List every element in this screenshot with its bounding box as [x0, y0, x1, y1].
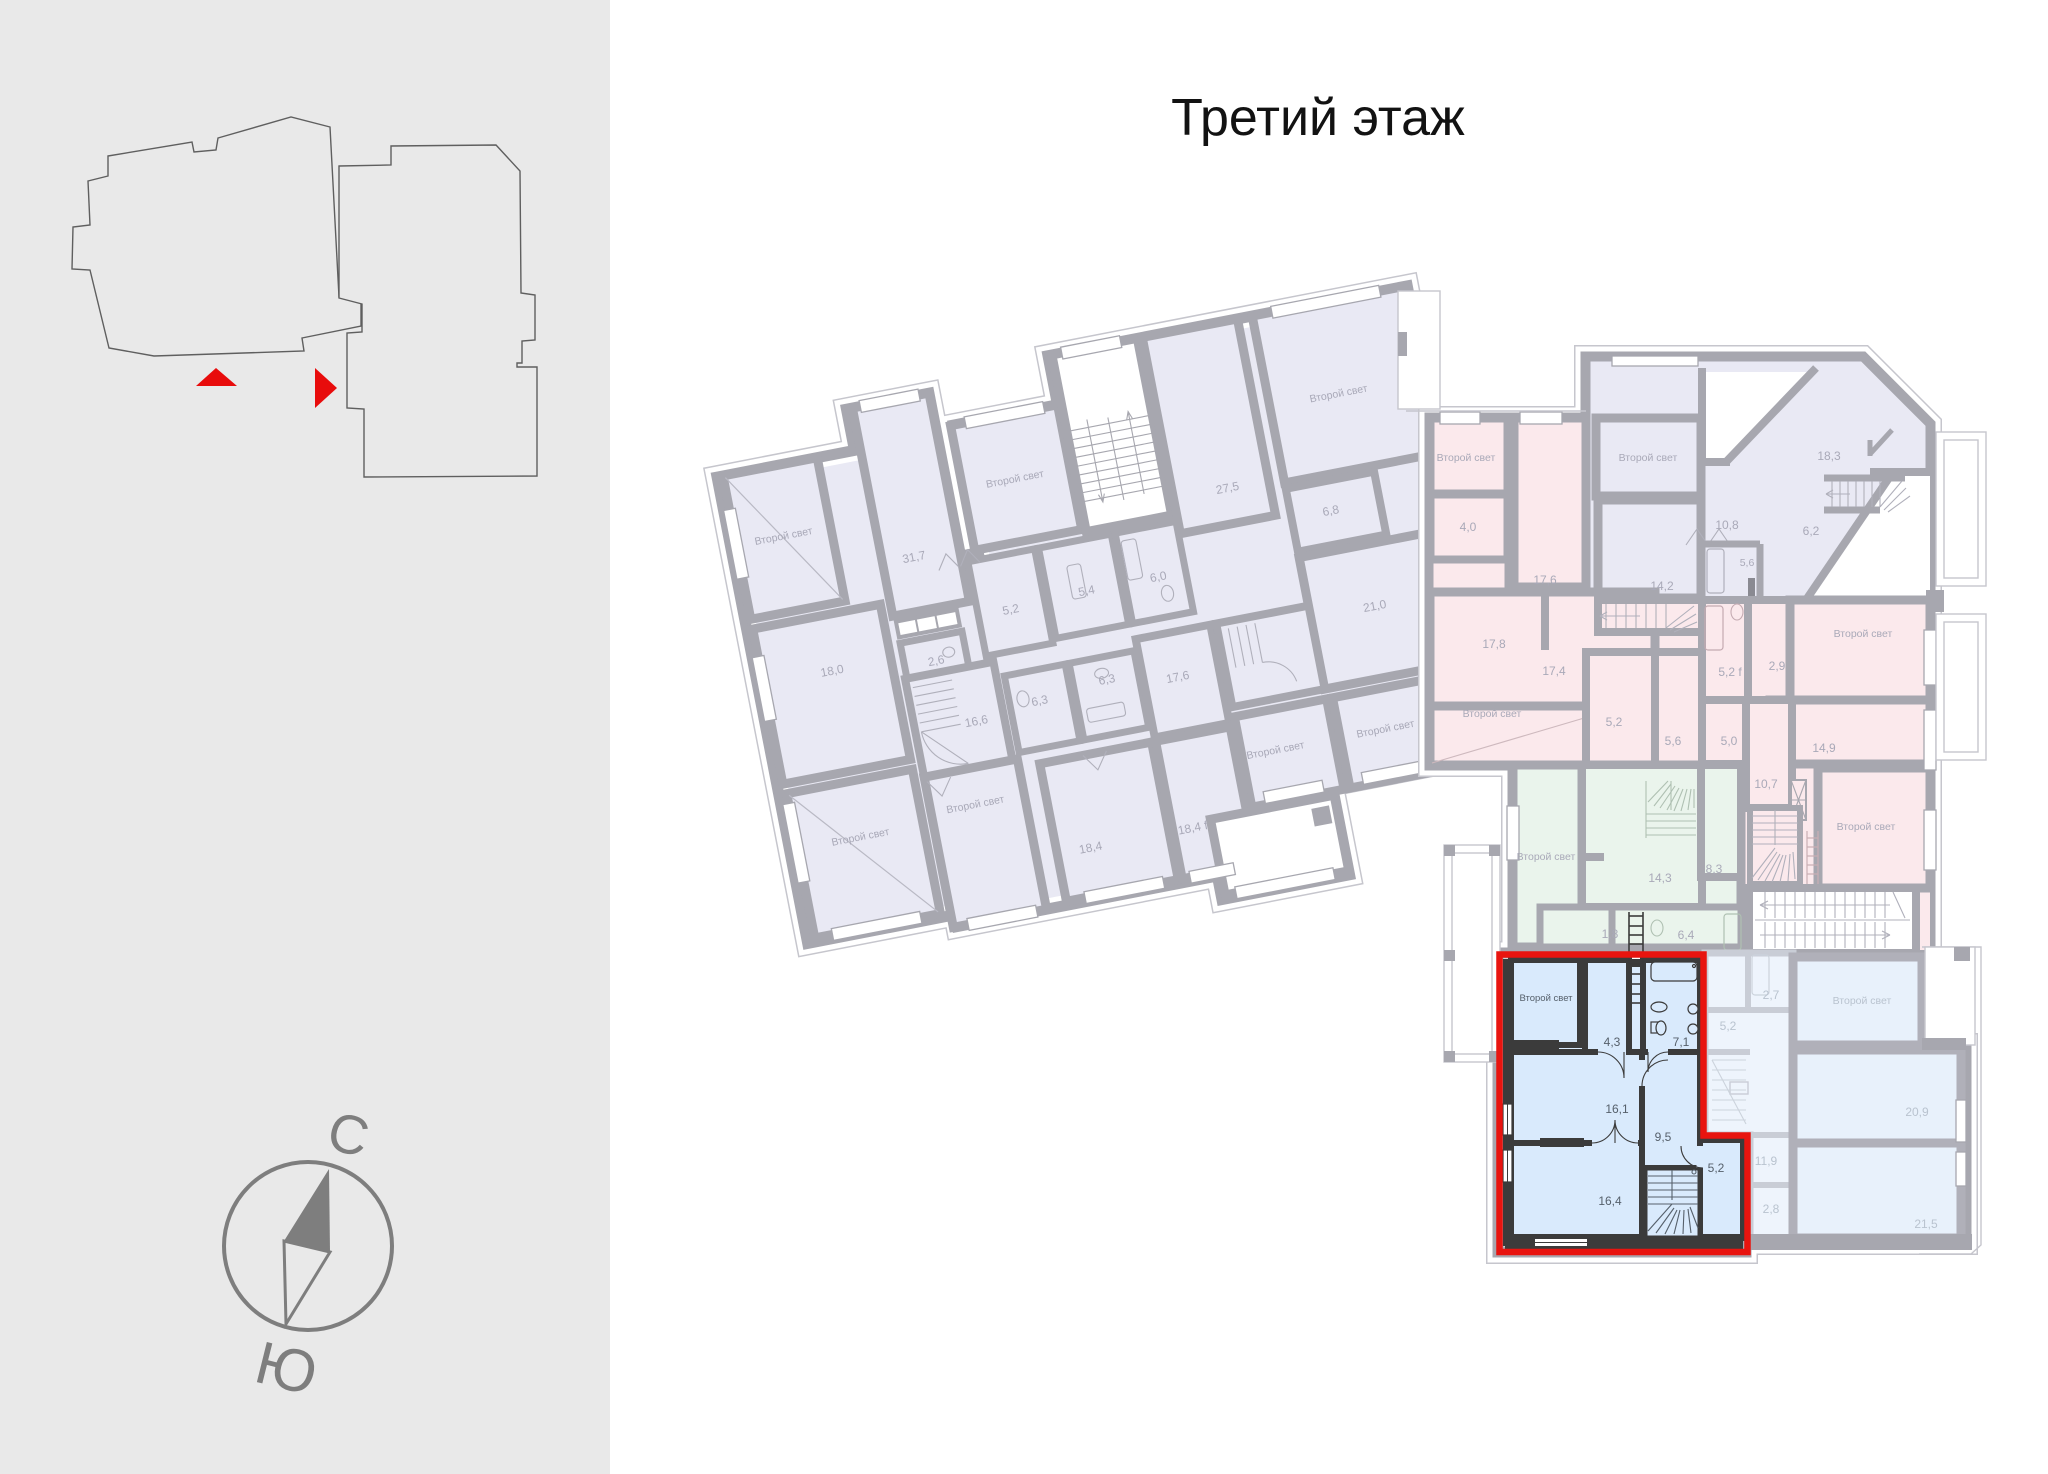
svg-text:16,4: 16,4 — [1598, 1194, 1622, 1208]
svg-text:6,4: 6,4 — [1678, 928, 1695, 942]
svg-text:17,4: 17,4 — [1542, 664, 1566, 678]
svg-text:Второй свет: Второй свет — [1837, 821, 1896, 833]
svg-text:7,1: 7,1 — [1673, 1035, 1690, 1049]
svg-text:5,2: 5,2 — [1708, 1161, 1725, 1175]
svg-text:1,8: 1,8 — [1602, 927, 1619, 941]
svg-text:2,8: 2,8 — [1763, 1202, 1780, 1216]
svg-text:Второй свет: Второй свет — [1437, 452, 1496, 464]
svg-text:2,7: 2,7 — [1763, 988, 1780, 1002]
svg-text:8,3: 8,3 — [1706, 862, 1723, 876]
svg-text:16,1: 16,1 — [1605, 1102, 1629, 1116]
svg-text:5,2: 5,2 — [1720, 1019, 1737, 1033]
svg-text:4,0: 4,0 — [1460, 520, 1477, 534]
svg-text:11,9: 11,9 — [1755, 1154, 1778, 1168]
svg-text:17,8: 17,8 — [1482, 637, 1506, 651]
svg-text:Второй свет: Второй свет — [1833, 995, 1892, 1007]
svg-text:10,8: 10,8 — [1715, 518, 1739, 532]
svg-text:20,9: 20,9 — [1905, 1105, 1929, 1119]
svg-text:14,2: 14,2 — [1650, 579, 1674, 593]
svg-text:Второй свет: Второй свет — [1619, 452, 1678, 464]
svg-text:14,9: 14,9 — [1812, 741, 1836, 755]
svg-text:9,5: 9,5 — [1655, 1130, 1672, 1144]
svg-text:6,2: 6,2 — [1803, 524, 1820, 538]
svg-text:Второй свет: Второй свет — [1519, 993, 1573, 1004]
svg-text:Второй свет: Второй свет — [1517, 851, 1576, 863]
svg-text:10,7: 10,7 — [1754, 777, 1778, 791]
svg-text:Второй свет: Второй свет — [1834, 628, 1893, 640]
svg-text:5,2: 5,2 — [1606, 715, 1623, 729]
svg-text:21,5: 21,5 — [1914, 1217, 1938, 1231]
svg-text:4,3: 4,3 — [1604, 1035, 1621, 1049]
svg-text:Второй свет: Второй свет — [1463, 708, 1522, 720]
svg-text:2,9: 2,9 — [1769, 659, 1786, 673]
svg-text:5,0: 5,0 — [1721, 734, 1738, 748]
svg-text:5,6: 5,6 — [1740, 557, 1755, 569]
svg-text:14,3: 14,3 — [1648, 871, 1672, 885]
svg-text:5,2 f: 5,2 f — [1718, 665, 1742, 679]
svg-text:18,3: 18,3 — [1817, 449, 1841, 463]
svg-text:Третий этаж: Третий этаж — [1171, 89, 1465, 147]
svg-text:5,6: 5,6 — [1665, 734, 1682, 748]
svg-text:17,6: 17,6 — [1533, 573, 1557, 587]
